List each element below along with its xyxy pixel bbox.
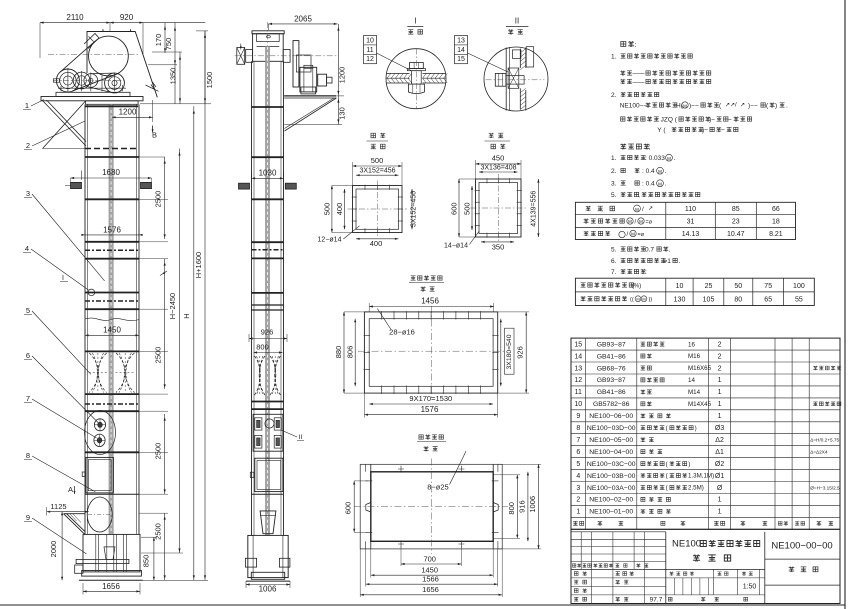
- svg-text:4: 4: [576, 473, 580, 480]
- svg-text:4: 4: [25, 244, 29, 253]
- svg-text:600: 600: [344, 502, 353, 515]
- svg-text:Ø=H−3.15/2.5: Ø=H−3.15/2.5: [810, 486, 840, 491]
- svg-text:16: 16: [688, 341, 695, 348]
- svg-text:1: 1: [718, 497, 722, 504]
- svg-text:((: ((: [630, 297, 634, 303]
- svg-text:,: ,: [670, 72, 671, 78]
- svg-text:12: 12: [366, 56, 374, 63]
- svg-text:Y (: Y (: [657, 127, 666, 134]
- svg-text:=ø: =ø: [646, 219, 653, 225]
- svg-text:66: 66: [772, 206, 780, 213]
- svg-text:25: 25: [705, 283, 713, 290]
- svg-text:Ø3: Ø3: [715, 425, 724, 432]
- svg-text:8−ø25: 8−ø25: [427, 483, 448, 492]
- svg-text:14.13: 14.13: [682, 231, 700, 238]
- svg-text:): ): [688, 461, 690, 468]
- svg-text:15: 15: [457, 56, 465, 63]
- svg-text:10: 10: [574, 401, 582, 408]
- svg-text:350: 350: [492, 243, 505, 252]
- svg-text:11: 11: [366, 47, 373, 54]
- svg-text:2: 2: [576, 497, 580, 504]
- svg-text:9X170=1530: 9X170=1530: [409, 394, 452, 403]
- svg-text:14: 14: [457, 47, 465, 54]
- svg-text:850: 850: [142, 555, 151, 568]
- svg-text:1030: 1030: [259, 169, 277, 178]
- svg-text:)−: )−: [702, 127, 708, 134]
- svg-text:II: II: [515, 17, 519, 26]
- svg-text:M: M: [635, 207, 639, 212]
- svg-text:500: 500: [463, 202, 472, 215]
- svg-text:H+1600: H+1600: [194, 252, 203, 278]
- svg-text:11: 11: [575, 389, 582, 396]
- svg-text:.: .: [665, 168, 667, 175]
- svg-text:M14: M14: [688, 389, 701, 396]
- svg-text:M14X45: M14X45: [688, 401, 712, 408]
- svg-text:(%): (%): [632, 283, 641, 289]
- svg-text:450: 450: [492, 154, 505, 163]
- svg-text:1576: 1576: [103, 225, 121, 234]
- svg-text:I: I: [62, 275, 64, 282]
- svg-text:1200: 1200: [119, 108, 137, 117]
- svg-text:↗↗/: ↗↗/: [725, 103, 737, 109]
- svg-text:2: 2: [26, 141, 30, 150]
- svg-text:1125: 1125: [50, 502, 66, 511]
- svg-text:6: 6: [576, 449, 580, 456]
- svg-text:M: M: [683, 103, 687, 108]
- svg-text:1450: 1450: [103, 326, 121, 335]
- svg-text:7.: 7.: [611, 269, 617, 276]
- svg-text::: :: [645, 269, 647, 276]
- svg-text:700: 700: [423, 554, 436, 563]
- svg-text:8: 8: [26, 451, 30, 460]
- svg-text:8.21: 8.21: [769, 231, 783, 238]
- svg-text:Ø2: Ø2: [715, 461, 724, 468]
- svg-text:13: 13: [574, 365, 582, 372]
- svg-text:1.3M,1M): 1.3M,1M): [688, 473, 714, 480]
- svg-text:NE100−04−00: NE100−04−00: [589, 449, 633, 456]
- svg-text:): ): [775, 103, 777, 110]
- svg-text:10: 10: [676, 283, 684, 290]
- svg-text:1.: 1.: [611, 155, 617, 162]
- svg-text:M: M: [628, 219, 632, 224]
- svg-text:130: 130: [674, 297, 686, 304]
- svg-text:M: M: [658, 169, 662, 174]
- svg-text:4X139=556: 4X139=556: [531, 191, 538, 227]
- svg-text:916: 916: [517, 500, 526, 513]
- svg-text:926: 926: [516, 346, 525, 359]
- svg-text:GB93−87: GB93−87: [597, 341, 626, 348]
- svg-text:Δ=H/0.2+5.75: Δ=H/0.2+5.75: [810, 438, 839, 443]
- svg-text:H−2450: H−2450: [168, 293, 177, 319]
- svg-text:1: 1: [25, 101, 29, 110]
- svg-text:Ø1: Ø1: [715, 473, 724, 480]
- svg-text:Δ1: Δ1: [715, 449, 724, 456]
- svg-text:65: 65: [764, 297, 772, 304]
- svg-text:5.: 5.: [611, 192, 617, 199]
- svg-text:3.: 3.: [611, 181, 617, 188]
- svg-text:)−−: )−−: [689, 103, 699, 110]
- svg-text:1680: 1680: [102, 168, 120, 177]
- svg-text:NE100−03A−00: NE100−03A−00: [587, 485, 636, 492]
- svg-text:13: 13: [457, 37, 465, 44]
- svg-text:M16: M16: [688, 353, 701, 360]
- svg-text:Δ2: Δ2: [715, 437, 724, 444]
- svg-text:80: 80: [734, 297, 742, 304]
- svg-text:GB68−76: GB68−76: [597, 365, 626, 372]
- svg-text:=ø: =ø: [638, 232, 645, 238]
- svg-text:2: 2: [718, 341, 722, 348]
- svg-text:M16X65: M16X65: [688, 365, 712, 372]
- svg-text:110: 110: [685, 206, 696, 213]
- svg-text:M: M: [631, 232, 635, 237]
- svg-text:NE100−06−00: NE100−06−00: [589, 413, 633, 420]
- svg-text:600: 600: [450, 202, 459, 215]
- svg-text:1200: 1200: [338, 67, 347, 84]
- svg-text:100: 100: [793, 283, 805, 290]
- svg-text:M: M: [639, 219, 643, 224]
- svg-text:1656: 1656: [422, 585, 439, 594]
- svg-text:500: 500: [371, 156, 384, 165]
- svg-text:NE100−01−00: NE100−01−00: [589, 509, 633, 516]
- svg-text:9: 9: [576, 413, 580, 420]
- svg-text:M: M: [642, 297, 645, 302]
- svg-text:II: II: [299, 434, 303, 441]
- svg-text:5: 5: [26, 306, 30, 315]
- svg-text:1350: 1350: [169, 68, 178, 85]
- svg-text:1500: 1500: [205, 72, 214, 89]
- svg-text:97.7: 97.7: [650, 597, 663, 604]
- svg-text:3X152=456: 3X152=456: [411, 191, 418, 227]
- svg-text:1566: 1566: [422, 575, 439, 584]
- svg-text:23: 23: [732, 219, 740, 226]
- svg-text:)−−: )−−: [748, 103, 758, 110]
- svg-text:7: 7: [576, 437, 580, 444]
- svg-text::: :: [635, 42, 637, 49]
- svg-text:)−: )−: [709, 117, 715, 124]
- svg-text:−: −: [721, 127, 725, 134]
- svg-text:NE100: NE100: [672, 539, 701, 550]
- svg-text:: JZQ (: : JZQ (: [657, 117, 678, 124]
- svg-text:10: 10: [366, 37, 374, 44]
- svg-text:500: 500: [323, 203, 332, 216]
- svg-text:——: ——: [633, 80, 645, 86]
- svg-text:2000: 2000: [49, 541, 58, 558]
- svg-text:: 0.033: : 0.033: [645, 155, 665, 162]
- svg-text:Ø: Ø: [717, 485, 723, 492]
- svg-text:14−ø14: 14−ø14: [444, 242, 468, 249]
- svg-text:2.: 2.: [611, 168, 617, 175]
- svg-text:15: 15: [574, 341, 582, 348]
- svg-text:5: 5: [576, 461, 580, 468]
- svg-text:NE100−03D−00: NE100−03D−00: [587, 425, 636, 432]
- svg-text:NE100−00−00: NE100−00−00: [771, 541, 832, 552]
- svg-text:1006: 1006: [528, 496, 537, 513]
- svg-text:400: 400: [335, 203, 344, 216]
- svg-text:55: 55: [795, 297, 803, 304]
- svg-text:50: 50: [734, 283, 742, 290]
- svg-text:1.: 1.: [611, 54, 617, 61]
- svg-text:6: 6: [26, 351, 30, 360]
- svg-text:,: ,: [670, 80, 671, 86]
- svg-text:2110: 2110: [66, 13, 84, 22]
- svg-text:NE100−03B−00: NE100−03B−00: [587, 473, 636, 480]
- svg-text:H: H: [182, 313, 191, 318]
- svg-text:926: 926: [261, 328, 274, 337]
- svg-text:↗: ↗: [648, 206, 653, 212]
- svg-text:2500: 2500: [154, 191, 163, 208]
- svg-text:NE100−−: NE100−−: [620, 103, 648, 110]
- svg-text:↗: ↗: [740, 103, 745, 109]
- svg-text:1: 1: [718, 389, 722, 396]
- svg-text:3: 3: [576, 485, 580, 492]
- svg-text:2: 2: [718, 353, 722, 360]
- svg-text:3X152=456: 3X152=456: [359, 167, 395, 174]
- svg-text:GB93−87: GB93−87: [597, 377, 626, 384]
- svg-text:2500: 2500: [154, 523, 163, 540]
- svg-text:.: .: [786, 103, 788, 110]
- svg-text:/: /: [642, 206, 644, 213]
- svg-text:M: M: [658, 182, 662, 187]
- svg-text:880: 880: [334, 346, 343, 359]
- svg-text:806: 806: [345, 346, 354, 359]
- svg-text:−: −: [728, 117, 732, 124]
- svg-text:5.: 5.: [611, 247, 617, 254]
- svg-text:1576: 1576: [421, 405, 439, 414]
- svg-text:800: 800: [256, 343, 269, 352]
- svg-text:18: 18: [772, 219, 780, 226]
- svg-text:——: ——: [633, 72, 645, 78]
- svg-text:2.: 2.: [611, 92, 617, 99]
- svg-text:I: I: [414, 17, 416, 26]
- svg-text:.: .: [674, 155, 676, 162]
- svg-text:NE100−05−00: NE100−05−00: [589, 437, 633, 444]
- svg-text:2065: 2065: [294, 14, 312, 23]
- svg-text:3X180=540: 3X180=540: [506, 334, 513, 369]
- svg-text:>1: >1: [664, 258, 672, 265]
- svg-text:31: 31: [687, 219, 695, 226]
- svg-text:,: ,: [639, 193, 640, 199]
- svg-text:920: 920: [120, 13, 134, 22]
- svg-text:1: 1: [718, 509, 722, 516]
- svg-text:1: 1: [718, 401, 722, 408]
- svg-text:.: .: [669, 247, 671, 254]
- svg-text:2500: 2500: [154, 443, 163, 460]
- svg-text:8: 8: [576, 425, 580, 432]
- svg-text:1656: 1656: [102, 582, 120, 591]
- svg-text:: 0.4: : 0.4: [642, 168, 655, 175]
- svg-text:3: 3: [26, 189, 30, 198]
- svg-text:1006: 1006: [259, 585, 277, 594]
- svg-text:10.47: 10.47: [727, 231, 745, 238]
- svg-text:: 0.4: : 0.4: [642, 181, 655, 188]
- svg-text:1: 1: [718, 377, 722, 384]
- svg-text:): ): [695, 425, 697, 432]
- svg-text:NE100−02−00: NE100−02−00: [589, 497, 633, 504]
- svg-text:.: .: [665, 181, 667, 188]
- svg-text:.: .: [679, 258, 681, 265]
- svg-text:Δ=Δ2X4: Δ=Δ2X4: [810, 450, 828, 455]
- svg-text:130: 130: [338, 107, 347, 120]
- svg-text:800: 800: [507, 502, 516, 515]
- svg-text:M: M: [667, 156, 671, 161]
- svg-text:14: 14: [688, 377, 695, 384]
- svg-text:1:50: 1:50: [743, 584, 757, 591]
- svg-text:750: 750: [164, 38, 173, 51]
- svg-text:GB41−86: GB41−86: [597, 353, 626, 360]
- svg-text:)): )): [649, 297, 653, 303]
- svg-text:GB41−86: GB41−86: [597, 389, 626, 396]
- svg-text:2: 2: [718, 365, 722, 372]
- svg-text:M: M: [636, 297, 639, 302]
- svg-text:2.5M): 2.5M): [688, 485, 704, 492]
- svg-text:1: 1: [718, 413, 722, 420]
- svg-text:400: 400: [370, 239, 383, 248]
- svg-text:12: 12: [574, 377, 582, 384]
- svg-text:75: 75: [764, 283, 772, 290]
- svg-text:85: 85: [732, 206, 740, 213]
- svg-text:7: 7: [26, 394, 30, 403]
- svg-text:28−ø16: 28−ø16: [389, 328, 415, 337]
- svg-text:1450: 1450: [421, 566, 438, 575]
- svg-text:12−ø14: 12−ø14: [318, 237, 342, 244]
- svg-text:GB5782−86: GB5782−86: [593, 401, 630, 408]
- svg-text:1456: 1456: [421, 296, 439, 305]
- svg-text:B: B: [152, 131, 157, 140]
- svg-text:170: 170: [154, 34, 163, 47]
- svg-text:14: 14: [574, 353, 582, 360]
- svg-text:0.7: 0.7: [645, 247, 654, 254]
- svg-text:NE100−03C−00: NE100−03C−00: [587, 461, 636, 468]
- svg-text:6.: 6.: [611, 258, 617, 265]
- svg-text:1: 1: [576, 509, 580, 516]
- svg-text::: :: [649, 145, 651, 152]
- svg-text:2500: 2500: [154, 347, 163, 364]
- svg-text:A: A: [68, 485, 73, 494]
- svg-text:9: 9: [26, 513, 30, 522]
- svg-text:3X136=408: 3X136=408: [480, 164, 516, 171]
- svg-text:105: 105: [703, 297, 715, 304]
